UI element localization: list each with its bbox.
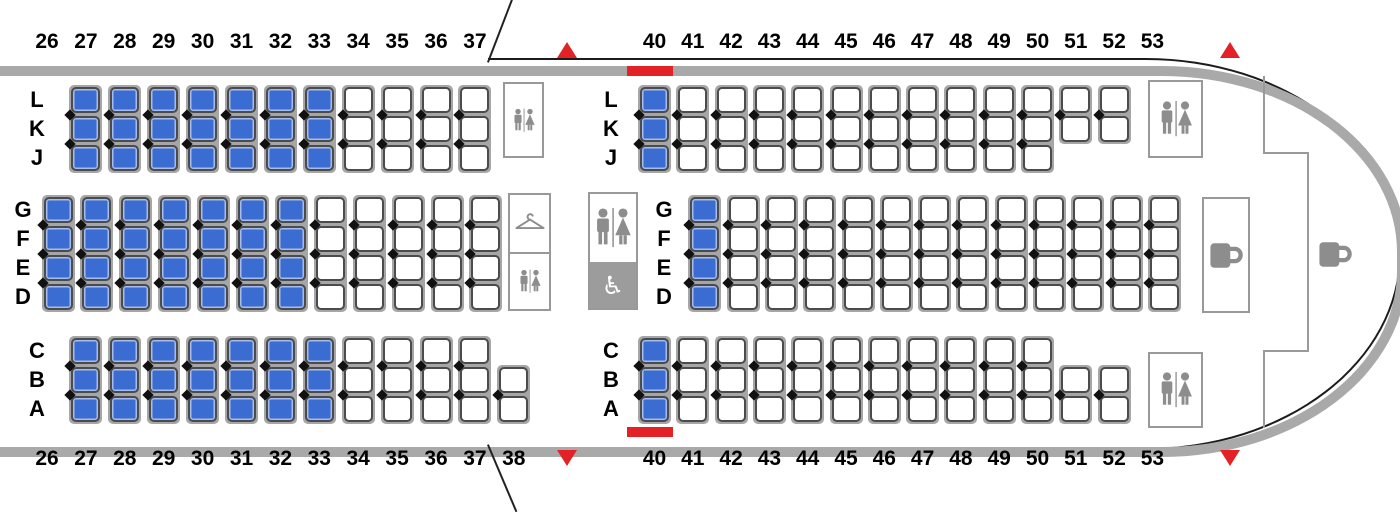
center-lavatory-block: ♿ — [588, 192, 638, 310]
seat-34B[interactable] — [344, 367, 373, 393]
row-number-bottom-right-41: 41 — [677, 447, 709, 471]
seat-50F[interactable] — [1035, 226, 1064, 252]
seat-47E[interactable] — [920, 255, 949, 281]
seat-41K[interactable] — [678, 116, 707, 142]
seat-41A[interactable] — [678, 396, 707, 422]
seat-34A[interactable] — [344, 396, 373, 422]
seat-48L[interactable] — [946, 87, 975, 113]
seat-28F[interactable] — [121, 226, 150, 252]
seat-40L[interactable] — [640, 87, 669, 113]
seat-51K[interactable] — [1061, 116, 1090, 142]
seat-44D[interactable] — [805, 284, 834, 310]
row-number-bottom-right-44: 44 — [792, 447, 824, 471]
seat-41J[interactable] — [678, 145, 707, 171]
seat-43G[interactable] — [767, 197, 796, 223]
seat-47B[interactable] — [908, 367, 937, 393]
seat-29F[interactable] — [160, 226, 189, 252]
row-number-bottom-left-28: 28 — [109, 447, 141, 471]
seat-35D[interactable] — [394, 284, 423, 310]
seat-34D[interactable] — [355, 284, 384, 310]
seat-43K[interactable] — [755, 116, 784, 142]
row-number-bottom-left-26: 26 — [31, 447, 63, 471]
seat-52L[interactable] — [1100, 87, 1129, 113]
seat-33L[interactable] — [305, 87, 334, 113]
seat-27A[interactable] — [71, 396, 100, 422]
seat-30A[interactable] — [188, 396, 217, 422]
seat-29D[interactable] — [160, 284, 189, 310]
seat-51F[interactable] — [1073, 226, 1102, 252]
seat-48D[interactable] — [958, 284, 987, 310]
seat-30G[interactable] — [199, 197, 228, 223]
seat-letter-aft-top-J: J — [596, 145, 626, 171]
seat-47J[interactable] — [908, 145, 937, 171]
seat-30L[interactable] — [188, 87, 217, 113]
seat-37J[interactable] — [460, 145, 489, 171]
row-number-top-left-36: 36 — [420, 30, 452, 54]
seat-30C[interactable] — [188, 338, 217, 364]
seat-27F[interactable] — [82, 226, 111, 252]
seat-52A[interactable] — [1100, 396, 1129, 422]
seat-29A[interactable] — [149, 396, 178, 422]
seat-35A[interactable] — [383, 396, 412, 422]
row-number-top-right-44: 44 — [792, 30, 824, 54]
seat-38B[interactable] — [499, 367, 528, 393]
seat-51E[interactable] — [1073, 255, 1102, 281]
seat-47K[interactable] — [908, 116, 937, 142]
mug-icon — [1318, 239, 1352, 270]
seat-33B[interactable] — [305, 367, 334, 393]
row-number-top-left-34: 34 — [342, 30, 374, 54]
seat-40B[interactable] — [640, 367, 669, 393]
seat-45D[interactable] — [844, 284, 873, 310]
seat-32D[interactable] — [277, 284, 306, 310]
seat-43D[interactable] — [767, 284, 796, 310]
seat-49E[interactable] — [997, 255, 1026, 281]
seat-45J[interactable] — [832, 145, 861, 171]
seat-49B[interactable] — [985, 367, 1014, 393]
seat-44G[interactable] — [805, 197, 834, 223]
seat-44B[interactable] — [793, 367, 822, 393]
seat-46D[interactable] — [882, 284, 911, 310]
seat-37L[interactable] — [460, 87, 489, 113]
seat-47D[interactable] — [920, 284, 949, 310]
row-number-top-left-27: 27 — [70, 30, 102, 54]
seat-41C[interactable] — [678, 338, 707, 364]
seat-28D[interactable] — [121, 284, 150, 310]
seat-44L[interactable] — [793, 87, 822, 113]
seat-32G[interactable] — [277, 197, 306, 223]
seat-37B[interactable] — [460, 367, 489, 393]
seat-46E[interactable] — [882, 255, 911, 281]
seat-42J[interactable] — [717, 145, 746, 171]
seat-49J[interactable] — [985, 145, 1014, 171]
seat-50A[interactable] — [1023, 396, 1052, 422]
seat-37C[interactable] — [460, 338, 489, 364]
seat-33J[interactable] — [305, 145, 334, 171]
seat-49A[interactable] — [985, 396, 1014, 422]
seat-33A[interactable] — [305, 396, 334, 422]
seat-47C[interactable] — [908, 338, 937, 364]
seat-53D[interactable] — [1150, 284, 1179, 310]
row-number-top-right-52: 52 — [1098, 30, 1130, 54]
seat-51A[interactable] — [1061, 396, 1090, 422]
seat-40A[interactable] — [640, 396, 669, 422]
seat-31B[interactable] — [227, 367, 256, 393]
row-number-top-left-37: 37 — [459, 30, 491, 54]
seat-40J[interactable] — [640, 145, 669, 171]
row-number-bottom-right-40: 40 — [639, 447, 671, 471]
seat-27D[interactable] — [82, 284, 111, 310]
row-number-top-right-50: 50 — [1022, 30, 1054, 54]
seat-44K[interactable] — [793, 116, 822, 142]
seat-letter-fwd-top-J: J — [22, 145, 52, 171]
seat-50E[interactable] — [1035, 255, 1064, 281]
seat-43L[interactable] — [755, 87, 784, 113]
seat-31F[interactable] — [238, 226, 267, 252]
seat-40K[interactable] — [640, 116, 669, 142]
seat-52G[interactable] — [1112, 197, 1141, 223]
seat-42C[interactable] — [717, 338, 746, 364]
seat-28J[interactable] — [110, 145, 139, 171]
seat-28L[interactable] — [110, 87, 139, 113]
seat-41G[interactable] — [690, 197, 719, 223]
seat-51D[interactable] — [1073, 284, 1102, 310]
seat-43C[interactable] — [755, 338, 784, 364]
seat-31A[interactable] — [227, 396, 256, 422]
restroom-icon — [1158, 100, 1194, 138]
seat-48A[interactable] — [946, 396, 975, 422]
seat-45F[interactable] — [844, 226, 873, 252]
row-number-bottom-left-27: 27 — [70, 447, 102, 471]
seat-30B[interactable] — [188, 367, 217, 393]
seat-27L[interactable] — [71, 87, 100, 113]
seat-43A[interactable] — [755, 396, 784, 422]
seat-37D[interactable] — [471, 284, 500, 310]
seat-44F[interactable] — [805, 226, 834, 252]
seat-28A[interactable] — [110, 396, 139, 422]
seat-34J[interactable] — [344, 145, 373, 171]
seat-28C[interactable] — [110, 338, 139, 364]
row-number-bottom-left-31: 31 — [226, 447, 258, 471]
seat-52F[interactable] — [1112, 226, 1141, 252]
seat-44C[interactable] — [793, 338, 822, 364]
seat-33C[interactable] — [305, 338, 334, 364]
seat-36G[interactable] — [433, 197, 462, 223]
seat-50C[interactable] — [1023, 338, 1052, 364]
seat-32A[interactable] — [266, 396, 295, 422]
row-number-top-left-28: 28 — [109, 30, 141, 54]
seat-45A[interactable] — [832, 396, 861, 422]
seat-36D[interactable] — [433, 284, 462, 310]
row-number-bottom-left-38: 38 — [498, 447, 530, 471]
seat-29C[interactable] — [149, 338, 178, 364]
seat-26F[interactable] — [44, 226, 73, 252]
seat-48G[interactable] — [958, 197, 987, 223]
seat-26E[interactable] — [44, 255, 73, 281]
seat-46F[interactable] — [882, 226, 911, 252]
seat-49F[interactable] — [997, 226, 1026, 252]
seat-51B[interactable] — [1061, 367, 1090, 393]
exit-arrow-down-icon — [557, 450, 577, 466]
seat-42F[interactable] — [729, 226, 758, 252]
seat-27J[interactable] — [71, 145, 100, 171]
seat-36A[interactable] — [422, 396, 451, 422]
seat-48J[interactable] — [946, 145, 975, 171]
seat-42L[interactable] — [717, 87, 746, 113]
seat-28G[interactable] — [121, 197, 150, 223]
tail-bulkhead-wall — [1263, 350, 1265, 428]
seat-48C[interactable] — [946, 338, 975, 364]
seat-52D[interactable] — [1112, 284, 1141, 310]
seat-27G[interactable] — [82, 197, 111, 223]
seat-letter-aft-bottom-C: C — [596, 338, 626, 364]
seat-37G[interactable] — [471, 197, 500, 223]
seat-49C[interactable] — [985, 338, 1014, 364]
seat-36L[interactable] — [422, 87, 451, 113]
seat-32K[interactable] — [266, 116, 295, 142]
seat-44A[interactable] — [793, 396, 822, 422]
seat-42B[interactable] — [717, 367, 746, 393]
seat-33D[interactable] — [316, 284, 345, 310]
mid-lavatory — [510, 252, 549, 309]
seat-48K[interactable] — [946, 116, 975, 142]
row-number-top-left-30: 30 — [187, 30, 219, 54]
seat-47G[interactable] — [920, 197, 949, 223]
seat-28E[interactable] — [121, 255, 150, 281]
seat-43E[interactable] — [767, 255, 796, 281]
row-number-bottom-left-37: 37 — [459, 447, 491, 471]
seat-43J[interactable] — [755, 145, 784, 171]
row-number-top-right-48: 48 — [945, 30, 977, 54]
seat-51L[interactable] — [1061, 87, 1090, 113]
seat-48E[interactable] — [958, 255, 987, 281]
seat-31J[interactable] — [227, 145, 256, 171]
seat-50K[interactable] — [1023, 116, 1052, 142]
seat-29J[interactable] — [149, 145, 178, 171]
seat-30E[interactable] — [199, 255, 228, 281]
seat-46J[interactable] — [870, 145, 899, 171]
seat-50D[interactable] — [1035, 284, 1064, 310]
seat-35K[interactable] — [383, 116, 412, 142]
seat-letter-aft-bottom-B: B — [596, 367, 626, 393]
seat-36E[interactable] — [433, 255, 462, 281]
seat-29G[interactable] — [160, 197, 189, 223]
seat-44J[interactable] — [793, 145, 822, 171]
seat-45L[interactable] — [832, 87, 861, 113]
seat-30K[interactable] — [188, 116, 217, 142]
seat-52K[interactable] — [1100, 116, 1129, 142]
tail-bulkhead-wall — [1263, 152, 1309, 154]
seat-36B[interactable] — [422, 367, 451, 393]
seat-34G[interactable] — [355, 197, 384, 223]
seat-26D[interactable] — [44, 284, 73, 310]
row-number-top-right-47: 47 — [907, 30, 939, 54]
row-number-top-right-51: 51 — [1060, 30, 1092, 54]
seat-28B[interactable] — [110, 367, 139, 393]
seat-31C[interactable] — [227, 338, 256, 364]
seat-45G[interactable] — [844, 197, 873, 223]
seat-35J[interactable] — [383, 145, 412, 171]
seat-46L[interactable] — [870, 87, 899, 113]
seat-42E[interactable] — [729, 255, 758, 281]
tail-lavatory-top — [1148, 80, 1203, 158]
seat-46K[interactable] — [870, 116, 899, 142]
seat-45B[interactable] — [832, 367, 861, 393]
center-lavatory — [590, 194, 636, 262]
seat-53F[interactable] — [1150, 226, 1179, 252]
row-number-bottom-right-52: 52 — [1098, 447, 1130, 471]
row-number-top-right-46: 46 — [868, 30, 900, 54]
seat-31G[interactable] — [238, 197, 267, 223]
seat-29L[interactable] — [149, 87, 178, 113]
exit-arrow-up-icon — [557, 42, 577, 58]
seat-42K[interactable] — [717, 116, 746, 142]
row-number-top-left-32: 32 — [264, 30, 296, 54]
seat-33F[interactable] — [316, 226, 345, 252]
seat-36K[interactable] — [422, 116, 451, 142]
seat-50L[interactable] — [1023, 87, 1052, 113]
seat-34C[interactable] — [344, 338, 373, 364]
tail-bulkhead-wall — [1263, 350, 1309, 352]
seat-47L[interactable] — [908, 87, 937, 113]
seat-32F[interactable] — [277, 226, 306, 252]
seat-27C[interactable] — [71, 338, 100, 364]
row-number-top-right-42: 42 — [715, 30, 747, 54]
seat-52B[interactable] — [1100, 367, 1129, 393]
seat-41E[interactable] — [690, 255, 719, 281]
accessible-lavatory: ♿ — [590, 262, 636, 308]
row-number-top-left-29: 29 — [148, 30, 180, 54]
seat-34K[interactable] — [344, 116, 373, 142]
seat-46B[interactable] — [870, 367, 899, 393]
seat-49L[interactable] — [985, 87, 1014, 113]
seat-31D[interactable] — [238, 284, 267, 310]
seat-32C[interactable] — [266, 338, 295, 364]
seat-45C[interactable] — [832, 338, 861, 364]
seat-37K[interactable] — [460, 116, 489, 142]
row-number-top-left-26: 26 — [31, 30, 63, 54]
seat-35L[interactable] — [383, 87, 412, 113]
seat-33K[interactable] — [305, 116, 334, 142]
seat-53G[interactable] — [1150, 197, 1179, 223]
seat-48B[interactable] — [946, 367, 975, 393]
seat-letter-aft-mid-F: F — [649, 226, 679, 252]
seat-47A[interactable] — [908, 396, 937, 422]
seat-46A[interactable] — [870, 396, 899, 422]
seat-42G[interactable] — [729, 197, 758, 223]
row-number-bottom-right-45: 45 — [830, 447, 862, 471]
seat-35G[interactable] — [394, 197, 423, 223]
seat-41D[interactable] — [690, 284, 719, 310]
seat-33G[interactable] — [316, 197, 345, 223]
row-number-bottom-right-42: 42 — [715, 447, 747, 471]
seat-53E[interactable] — [1150, 255, 1179, 281]
seat-27B[interactable] — [71, 367, 100, 393]
seat-35E[interactable] — [394, 255, 423, 281]
seat-33E[interactable] — [316, 255, 345, 281]
seat-43F[interactable] — [767, 226, 796, 252]
seat-29E[interactable] — [160, 255, 189, 281]
seat-41F[interactable] — [690, 226, 719, 252]
seat-37A[interactable] — [460, 396, 489, 422]
seat-50J[interactable] — [1023, 145, 1052, 171]
seat-49G[interactable] — [997, 197, 1026, 223]
seat-49D[interactable] — [997, 284, 1026, 310]
seat-27K[interactable] — [71, 116, 100, 142]
seat-35B[interactable] — [383, 367, 412, 393]
seat-49K[interactable] — [985, 116, 1014, 142]
seat-36C[interactable] — [422, 338, 451, 364]
row-number-top-right-43: 43 — [753, 30, 785, 54]
row-number-bottom-right-49: 49 — [983, 447, 1015, 471]
seat-45K[interactable] — [832, 116, 861, 142]
seat-26G[interactable] — [44, 197, 73, 223]
seat-34L[interactable] — [344, 87, 373, 113]
seat-34E[interactable] — [355, 255, 384, 281]
seat-36J[interactable] — [422, 145, 451, 171]
seat-52E[interactable] — [1112, 255, 1141, 281]
row-number-bottom-right-46: 46 — [868, 447, 900, 471]
seat-letter-fwd-bottom-B: B — [22, 367, 52, 393]
seat-letter-aft-mid-D: D — [649, 284, 679, 310]
seat-44E[interactable] — [805, 255, 834, 281]
seat-30F[interactable] — [199, 226, 228, 252]
seat-45E[interactable] — [844, 255, 873, 281]
seat-38A[interactable] — [499, 396, 528, 422]
seat-40C[interactable] — [640, 338, 669, 364]
seat-43B[interactable] — [755, 367, 784, 393]
seat-32L[interactable] — [266, 87, 295, 113]
seat-42A[interactable] — [717, 396, 746, 422]
seat-32J[interactable] — [266, 145, 295, 171]
seat-35C[interactable] — [383, 338, 412, 364]
seat-51G[interactable] — [1073, 197, 1102, 223]
seat-32B[interactable] — [266, 367, 295, 393]
seat-32E[interactable] — [277, 255, 306, 281]
seat-31L[interactable] — [227, 87, 256, 113]
exit-door-marker-bottom — [627, 427, 673, 437]
seat-27E[interactable] — [82, 255, 111, 281]
seat-50B[interactable] — [1023, 367, 1052, 393]
seat-letter-fwd-mid-D: D — [8, 284, 38, 310]
row-number-bottom-left-30: 30 — [187, 447, 219, 471]
seat-28K[interactable] — [110, 116, 139, 142]
seat-42D[interactable] — [729, 284, 758, 310]
seat-36F[interactable] — [433, 226, 462, 252]
seat-50G[interactable] — [1035, 197, 1064, 223]
seat-46C[interactable] — [870, 338, 899, 364]
seat-30J[interactable] — [188, 145, 217, 171]
row-number-bottom-left-33: 33 — [303, 447, 335, 471]
seat-31K[interactable] — [227, 116, 256, 142]
seat-31E[interactable] — [238, 255, 267, 281]
seat-34F[interactable] — [355, 226, 384, 252]
seat-35F[interactable] — [394, 226, 423, 252]
seat-37F[interactable] — [471, 226, 500, 252]
seat-29B[interactable] — [149, 367, 178, 393]
seat-48F[interactable] — [958, 226, 987, 252]
seat-37E[interactable] — [471, 255, 500, 281]
row-number-top-left-33: 33 — [303, 30, 335, 54]
mid-closet-lavatory — [508, 193, 551, 311]
seat-41L[interactable] — [678, 87, 707, 113]
seat-46G[interactable] — [882, 197, 911, 223]
seat-30D[interactable] — [199, 284, 228, 310]
seat-41B[interactable] — [678, 367, 707, 393]
seat-29K[interactable] — [149, 116, 178, 142]
mid-closet — [510, 195, 549, 252]
seat-47F[interactable] — [920, 226, 949, 252]
